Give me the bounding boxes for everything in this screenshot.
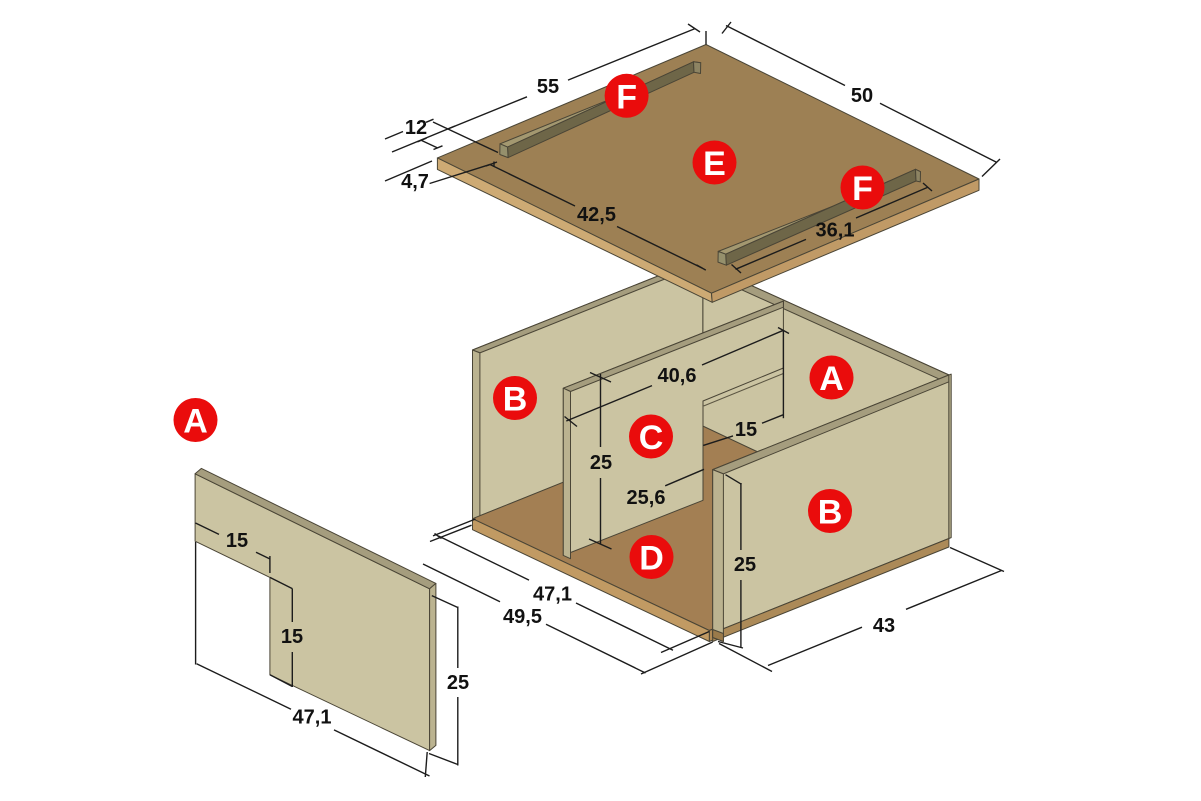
svg-text:4,7: 4,7 [401,171,429,193]
svg-text:49,5: 49,5 [503,606,542,628]
svg-text:42,5: 42,5 [577,204,616,226]
svg-text:25: 25 [734,554,756,576]
svg-text:36,1: 36,1 [816,220,855,242]
svg-text:B: B [503,381,528,419]
svg-text:A: A [819,360,844,398]
svg-text:40,6: 40,6 [658,365,697,387]
svg-text:15: 15 [226,530,248,552]
svg-text:47,1: 47,1 [293,707,332,729]
svg-text:55: 55 [537,76,559,98]
svg-text:E: E [703,145,726,183]
svg-text:12: 12 [405,117,427,139]
svg-text:47,1: 47,1 [533,584,572,606]
svg-text:25: 25 [447,672,469,694]
svg-text:D: D [639,540,664,578]
svg-text:25: 25 [590,452,612,474]
svg-text:F: F [616,78,637,116]
svg-text:15: 15 [281,626,303,648]
svg-text:43: 43 [873,615,895,637]
svg-text:F: F [852,170,873,208]
svg-text:A: A [183,403,208,441]
svg-text:25,6: 25,6 [627,487,666,509]
svg-text:15: 15 [735,419,757,441]
svg-text:C: C [639,419,664,457]
svg-text:50: 50 [851,85,873,107]
svg-text:B: B [818,494,843,532]
